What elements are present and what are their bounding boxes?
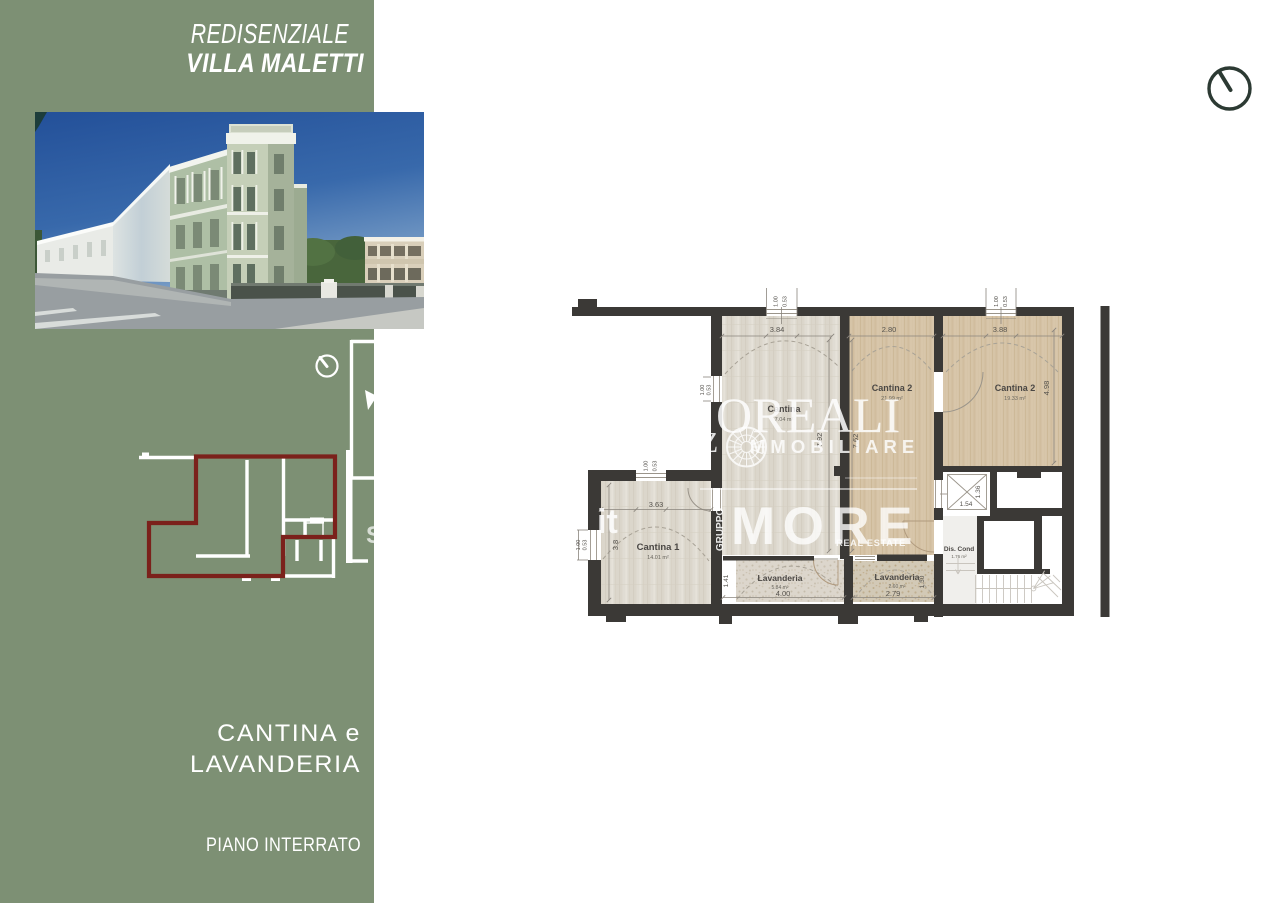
svg-text:1.36: 1.36	[975, 485, 982, 498]
svg-text:1.00: 1.00	[774, 296, 780, 307]
svg-text:0.53: 0.53	[583, 540, 589, 551]
svg-text:2.60 m²: 2.60 m²	[889, 584, 906, 590]
svg-text:S: S	[366, 522, 382, 549]
svg-text:1.76 m²: 1.76 m²	[951, 554, 967, 559]
svg-text:0.53: 0.53	[707, 385, 713, 396]
svg-text:OREALI: OREALI	[716, 387, 901, 443]
svg-text:1.00: 1.00	[700, 385, 706, 396]
svg-text:1.00: 1.00	[994, 296, 1000, 307]
svg-text:2.80: 2.80	[882, 325, 897, 334]
svg-text:3.88: 3.88	[993, 325, 1008, 334]
svg-text:Cantina 2: Cantina 2	[995, 383, 1036, 393]
svg-text:it: it	[597, 503, 618, 541]
svg-text:Lavanderia: Lavanderia	[758, 573, 803, 583]
svg-text:1.54: 1.54	[960, 501, 973, 508]
svg-text:14.01 m²: 14.01 m²	[647, 555, 669, 561]
svg-text:19.33 m²: 19.33 m²	[1004, 396, 1026, 402]
svg-text:MMOBILIARE: MMOBILIARE	[750, 436, 919, 457]
svg-text:3.8: 3.8	[611, 540, 620, 550]
svg-text:0.53: 0.53	[783, 296, 789, 307]
svg-text:1.00: 1.00	[644, 461, 650, 472]
svg-text:1.30: 1.30	[919, 575, 926, 588]
svg-text:0.53: 0.53	[653, 461, 659, 472]
svg-text:5.84 m²: 5.84 m²	[772, 585, 789, 591]
svg-text:1.00: 1.00	[576, 540, 582, 551]
svg-text:2.79: 2.79	[886, 589, 901, 598]
svg-text:0.53: 0.53	[1003, 296, 1009, 307]
svg-text:3.84: 3.84	[770, 325, 785, 334]
svg-text:REAL ESTATE: REAL ESTATE	[836, 538, 906, 548]
svg-text:GRUPPO: GRUPPO	[715, 508, 726, 552]
svg-text:Lavanderia: Lavanderia	[875, 572, 920, 582]
svg-text:4.98: 4.98	[1042, 381, 1051, 396]
svg-text:Dis. Cond: Dis. Cond	[944, 546, 974, 553]
svg-text:Cantina 1: Cantina 1	[637, 542, 680, 553]
svg-text:1.41: 1.41	[723, 574, 730, 587]
svg-text:3.63: 3.63	[649, 500, 664, 509]
